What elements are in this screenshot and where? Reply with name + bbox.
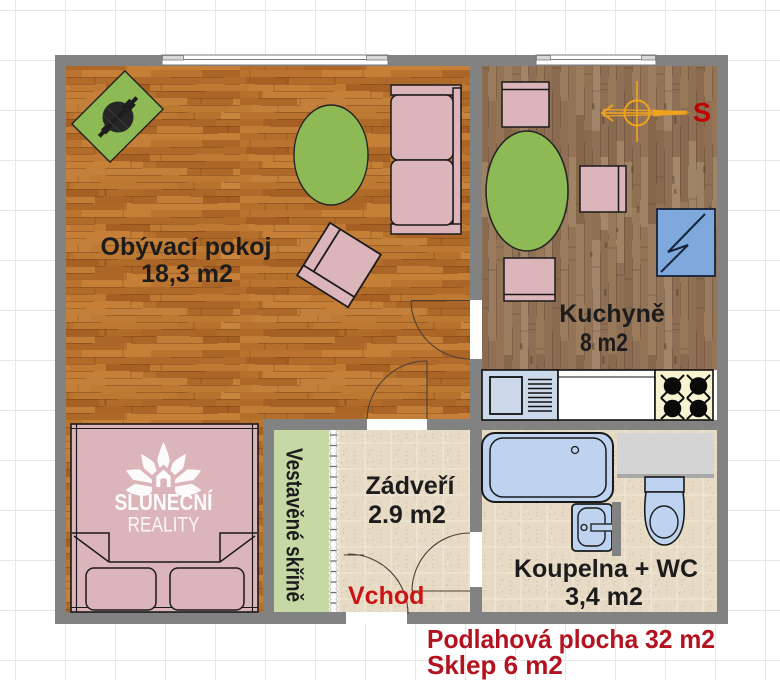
svg-text:S: S	[693, 98, 711, 128]
svg-text:Vestavěné skříně: Vestavěné skříně	[282, 448, 308, 602]
svg-text:Koupelna + WC: Koupelna + WC	[514, 555, 698, 583]
svg-text:Kuchyně: Kuchyně	[559, 300, 665, 328]
svg-text:Vchod: Vchod	[348, 582, 424, 610]
svg-text:3,4 m2: 3,4 m2	[565, 583, 643, 611]
svg-text:REALITY: REALITY	[128, 514, 200, 537]
svg-text:Obývací pokoj: Obývací pokoj	[101, 233, 272, 261]
svg-text:Sklep 6 m2: Sklep 6 m2	[427, 650, 563, 680]
svg-text:SLUNEČNÍ: SLUNEČNÍ	[115, 488, 214, 515]
svg-text:2.9 m2: 2.9 m2	[368, 501, 446, 529]
svg-text:Zádveří: Zádveří	[366, 472, 456, 500]
svg-text:8 m2: 8 m2	[580, 329, 628, 357]
svg-text:18,3 m2: 18,3 m2	[141, 260, 233, 288]
